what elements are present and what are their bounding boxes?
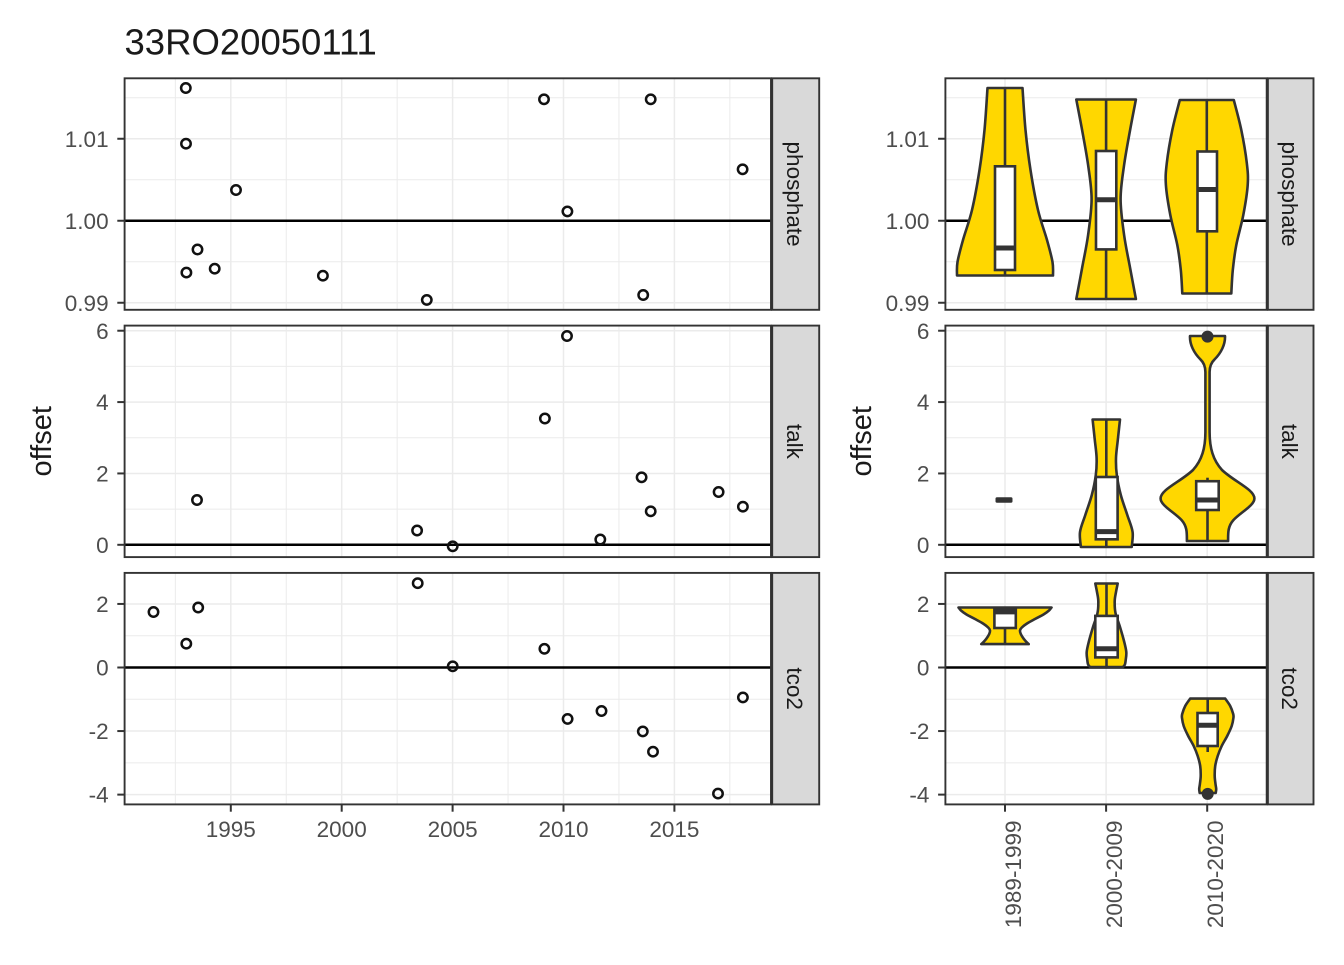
svg-text:4: 4: [96, 390, 109, 415]
svg-text:1.00: 1.00: [65, 209, 109, 234]
svg-text:1.01: 1.01: [65, 127, 109, 152]
svg-text:4: 4: [917, 390, 930, 415]
svg-text:offset: offset: [846, 406, 878, 476]
svg-text:tco2: tco2: [782, 667, 807, 710]
svg-text:2005: 2005: [428, 817, 478, 842]
svg-text:2: 2: [96, 462, 109, 487]
svg-text:phosphate: phosphate: [782, 142, 807, 247]
svg-text:1.00: 1.00: [886, 209, 930, 234]
svg-text:2000-2009: 2000-2009: [1102, 821, 1127, 929]
svg-text:2015: 2015: [649, 817, 699, 842]
svg-text:0: 0: [917, 656, 930, 681]
svg-text:2010: 2010: [538, 817, 588, 842]
svg-text:6: 6: [917, 319, 930, 344]
svg-text:talk: talk: [1277, 424, 1302, 460]
svg-text:0: 0: [96, 533, 109, 558]
svg-text:tco2: tco2: [1277, 667, 1302, 710]
svg-text:2: 2: [917, 462, 930, 487]
svg-text:1989-1999: 1989-1999: [1001, 821, 1026, 929]
svg-text:talk: talk: [782, 424, 807, 460]
svg-text:0.99: 0.99: [65, 291, 109, 316]
svg-text:-2: -2: [89, 719, 109, 744]
svg-text:2010-2020: 2010-2020: [1203, 821, 1228, 929]
svg-text:0: 0: [96, 656, 109, 681]
svg-text:2: 2: [96, 592, 109, 617]
svg-text:33RO20050111: 33RO20050111: [125, 22, 377, 63]
svg-text:offset: offset: [26, 406, 58, 476]
svg-text:2000: 2000: [317, 817, 367, 842]
svg-text:2: 2: [917, 592, 930, 617]
svg-text:1.01: 1.01: [886, 127, 930, 152]
svg-text:0.99: 0.99: [886, 291, 930, 316]
svg-text:-4: -4: [909, 783, 929, 808]
svg-text:6: 6: [96, 319, 109, 344]
svg-text:-2: -2: [909, 719, 929, 744]
svg-text:0: 0: [917, 533, 930, 558]
svg-text:-4: -4: [89, 783, 109, 808]
svg-text:phosphate: phosphate: [1277, 142, 1302, 247]
svg-text:1995: 1995: [206, 817, 256, 842]
